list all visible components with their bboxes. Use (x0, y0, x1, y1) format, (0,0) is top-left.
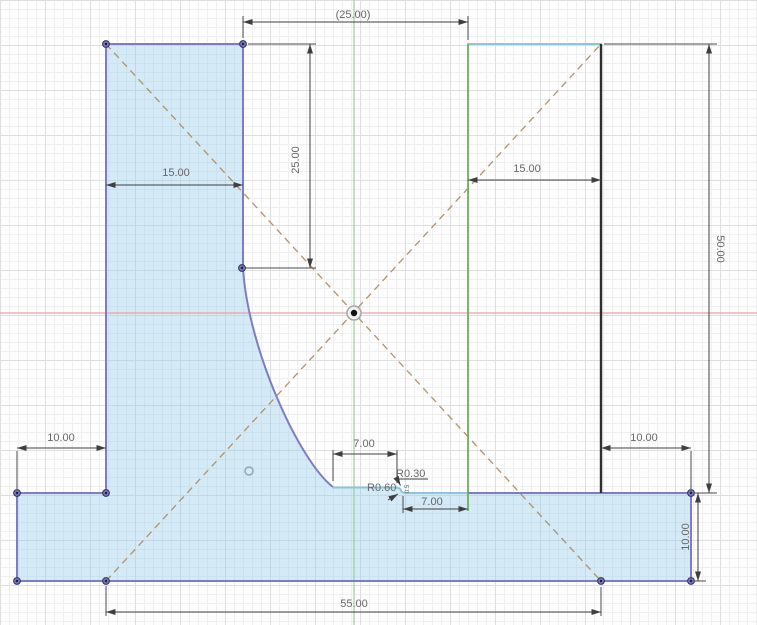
vertex-dot[interactable] (103, 578, 110, 585)
dim-slot-width-top: 7.00 (333, 438, 397, 483)
vertex-dot[interactable] (14, 578, 21, 585)
dim-value[interactable]: 10.00 (630, 432, 658, 444)
dim-value[interactable]: 55.00 (340, 598, 368, 610)
vertex-dot[interactable] (688, 578, 695, 585)
dim-value[interactable]: (25.00) (336, 9, 371, 21)
vertex-dot[interactable] (598, 578, 605, 585)
dim-base-right-offset: 10.00 (601, 432, 691, 489)
dim-ref-width-top: (25.00) (243, 9, 468, 40)
vertex-dot[interactable] (103, 490, 110, 497)
origin-point[interactable] (347, 306, 361, 320)
dim-value[interactable]: 15.00 (513, 163, 541, 175)
vertex-dot[interactable] (14, 490, 21, 497)
dim-radius-small: R0.30 (395, 468, 428, 486)
dim-left-block-height: 25.00 (245, 44, 316, 268)
dim-base-left-offset: 10.00 (17, 432, 106, 489)
dim-value[interactable]: 10.00 (47, 432, 75, 444)
dim-value[interactable]: R0.30 (396, 468, 425, 480)
dim-value[interactable]: 10.00 (680, 523, 692, 551)
vertex-dot[interactable] (688, 490, 695, 497)
dim-overall-height: 50.00 (604, 44, 726, 493)
vertex-dot[interactable] (240, 41, 247, 48)
vertex-dot[interactable] (239, 265, 246, 272)
dim-right-block-width: 15.00 (468, 163, 601, 180)
vertex-dot[interactable] (103, 41, 110, 48)
sketch-canvas: (25.00) 15.00 25.00 15.00 50.00 10.00 10… (0, 0, 757, 625)
dim-value[interactable]: R0.60 (367, 482, 396, 494)
dim-value[interactable]: 7.00 (421, 496, 442, 508)
dim-value[interactable]: 7.00 (353, 438, 374, 450)
dim-value[interactable]: 50.00 (714, 235, 726, 263)
dim-step-tiny[interactable]: 0.5 (405, 484, 411, 493)
dim-value[interactable]: 25.00 (290, 146, 302, 174)
dim-value[interactable]: 15.00 (162, 167, 190, 179)
